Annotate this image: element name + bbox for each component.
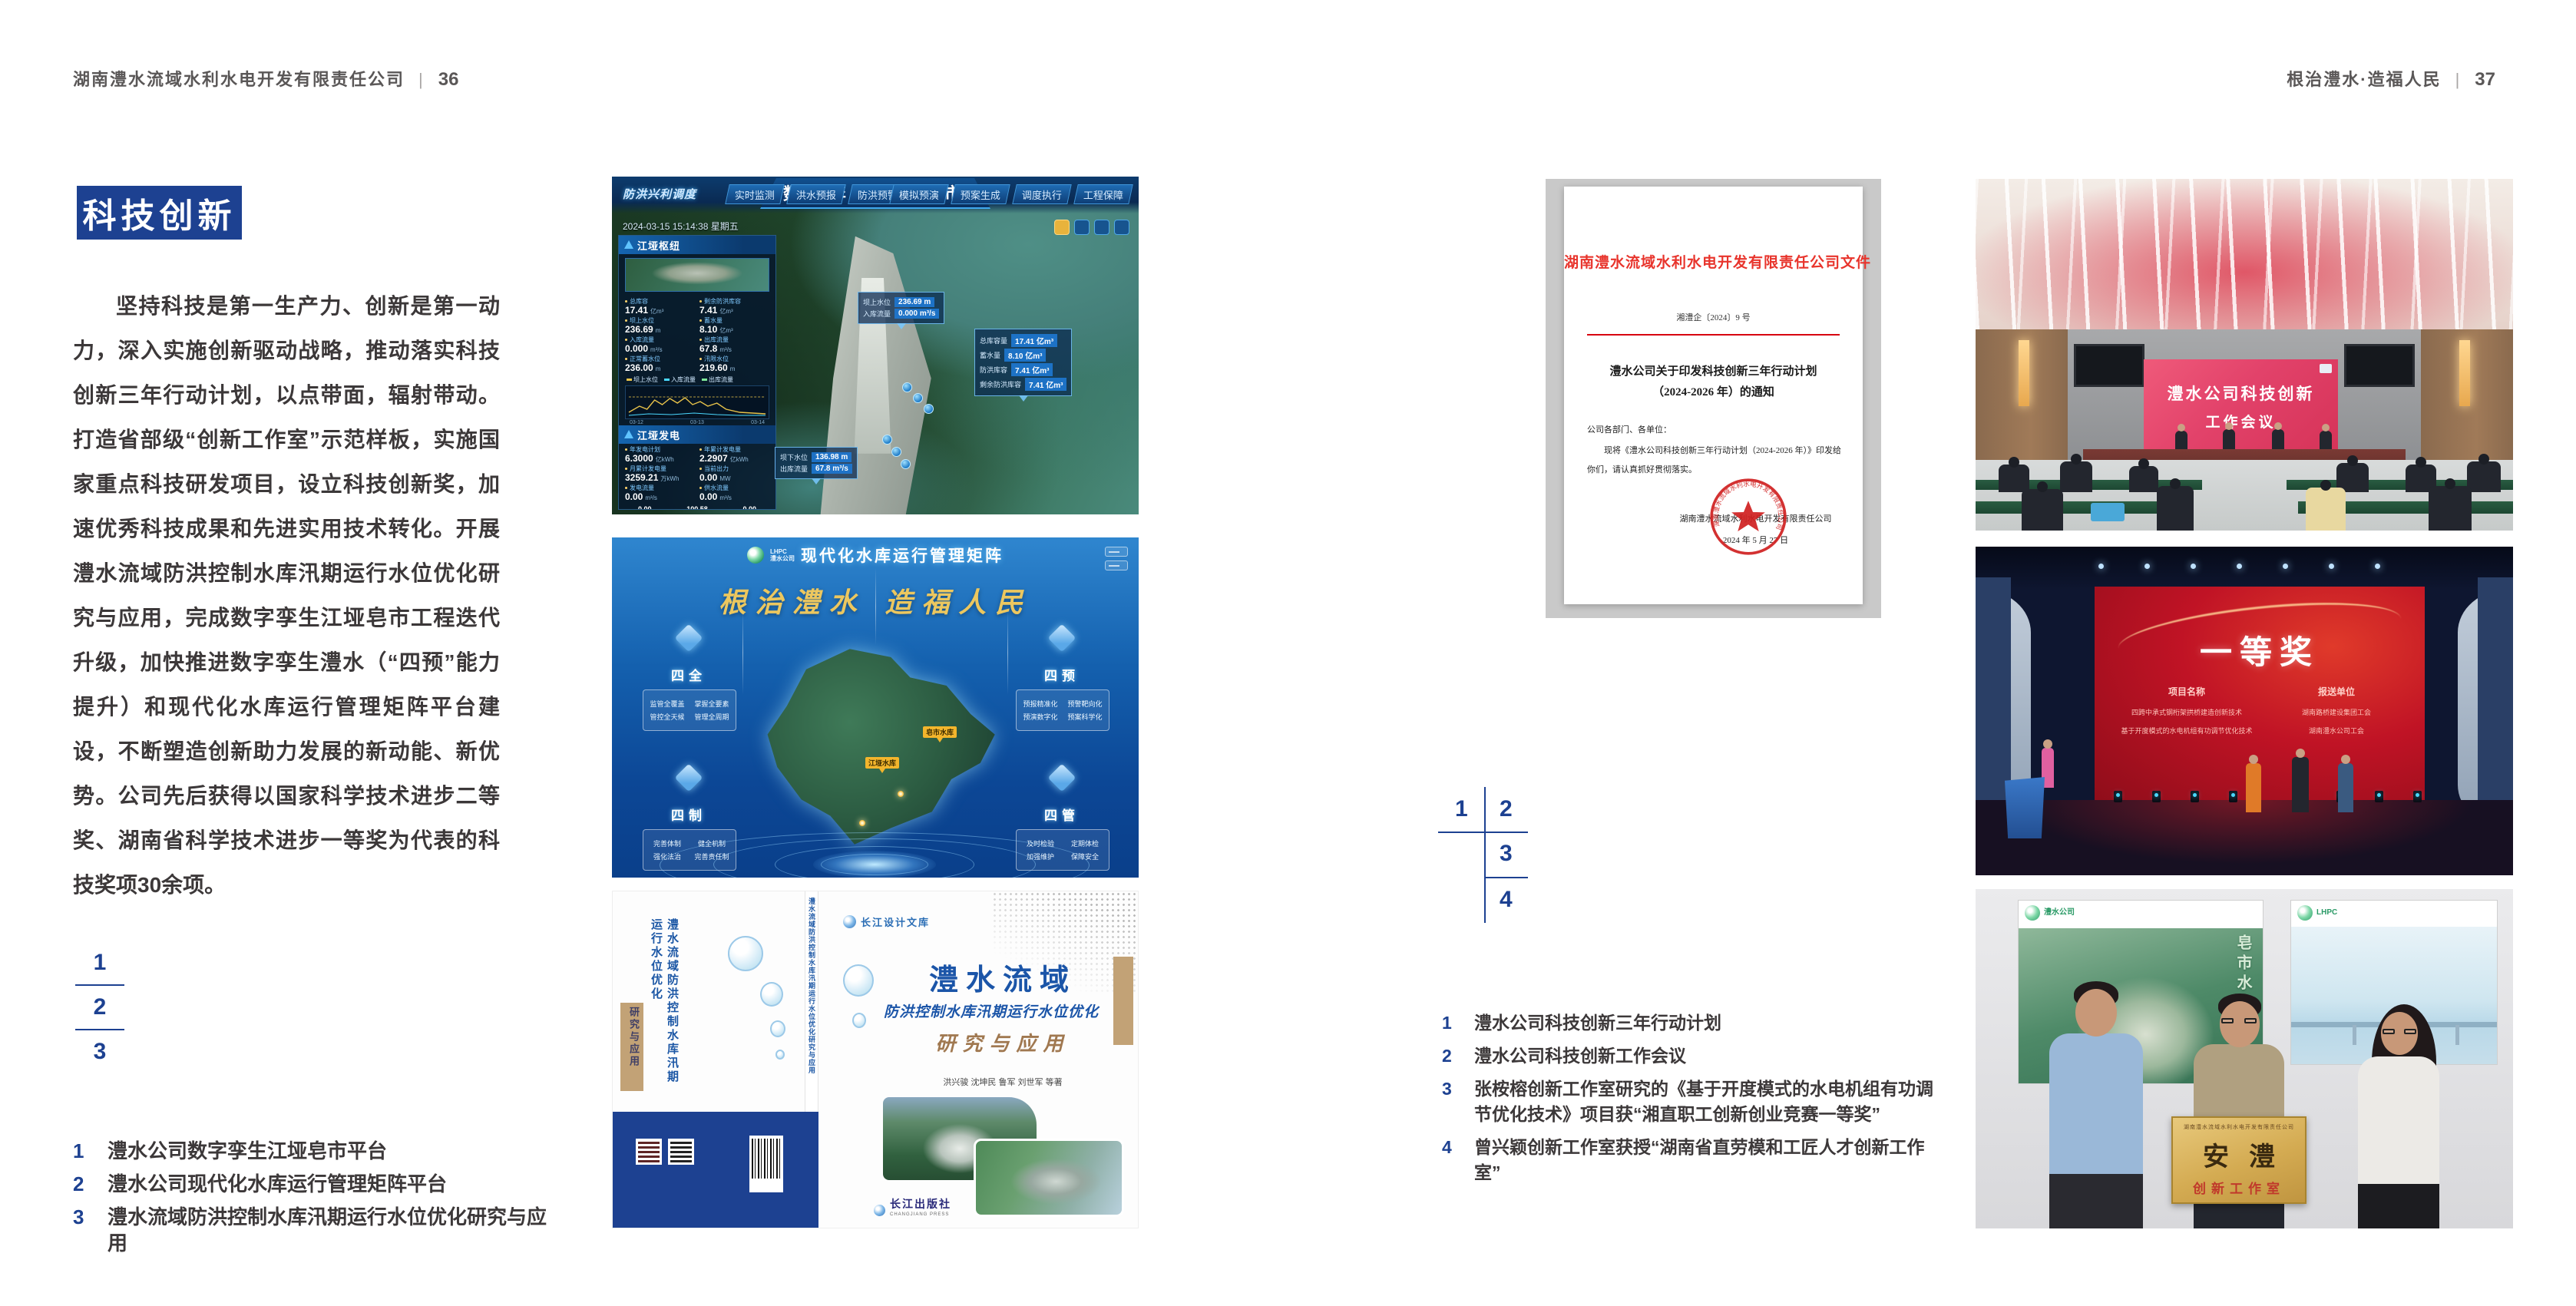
gate-marker-icon [913, 393, 923, 403]
stage-light-icon [2144, 564, 2150, 569]
stage-fixture-icon [2375, 791, 2383, 802]
tag-row: 剩余防洪库容7.41 亿m³ [980, 378, 1066, 391]
lectern [2005, 777, 2045, 838]
caption-row: 2 澧水公司科技创新工作会议 [1442, 1043, 1949, 1069]
figure-matrix-platform: LHPC澧水公司 现代化水库运行管理矩阵 根治澧水 造福人民 皂市水库 江垭水库… [612, 537, 1139, 878]
body-paragraph: 坚持科技是第一生产力、创新是第一动力，深入实施创新驱动战略，推动落实科技创新三年… [73, 284, 500, 908]
company-name: 湖南澧水流域水利水电开发有限责任公司 [73, 70, 405, 89]
bullet-icon [625, 339, 627, 341]
ceiling [1976, 179, 2513, 329]
toolbar-icon [1054, 220, 1070, 235]
dashboard-side-panel: 江垭枢纽 总库容 17.41亿m³ 剩余防洪库容 7.41亿m³ 坝上水位 [618, 235, 776, 510]
brand-slogan: 根治澧水·造福人民 [2287, 70, 2441, 89]
figure-index-number: 1 [75, 941, 124, 984]
qr-code [668, 1139, 694, 1165]
platform-header: LHPC澧水公司 现代化水库运行管理矩阵 [612, 544, 1139, 567]
panel-header: 江垭枢纽 [619, 236, 775, 254]
toolbar-icon [1114, 220, 1129, 235]
power-stats: 年发电计划 6.3000亿kWh 年累计发电量 2.2907亿kWh 月累计发电… [619, 444, 775, 504]
bullet-icon [699, 468, 702, 470]
caption-text: 曾兴颖创新工作室获授“湖南省直劳模和工匠人才创新工作室” [1474, 1135, 1949, 1185]
figure-index-number: 3 [1500, 841, 1513, 867]
official-seal-icon: 湖南澧水流域水利水电开发有限责任公司 [1708, 477, 1788, 557]
stat-cell: 蓄水量 8.10亿m³ [699, 316, 769, 335]
book-authors: 洪兴骏 沈坤民 鲁军 刘世军 等著 [866, 1076, 1139, 1088]
stat-cell: 供水流量 0.00m³/s [699, 484, 769, 502]
stage-fixture-icon [2114, 791, 2122, 802]
legend-swatch [664, 379, 670, 381]
stat-cell: 坝上水位 236.69m [625, 316, 695, 335]
gate-marker-icon [902, 382, 912, 392]
bullet-icon [699, 448, 702, 451]
toolbar-icon [1094, 220, 1109, 235]
stage-floor [1976, 800, 2513, 875]
caption-list-right: 1 澧水公司科技创新三年行动计划 2 澧水公司科技创新工作会议 3 张桉榕创新工… [1442, 1010, 1949, 1193]
wall-tv [2074, 344, 2144, 387]
water-droplet-icon [760, 982, 783, 1007]
panel-header: 江垭发电 [619, 425, 775, 444]
bridge-pier [2455, 1025, 2459, 1045]
stat-cell: 年发电计划 6.3000亿kWh [625, 445, 695, 464]
stage-light-icon [2098, 564, 2104, 569]
module-label: 防洪兴利调度 [623, 186, 696, 202]
matrix-icon [1048, 764, 1076, 792]
document-salutation: 公司各部门、各单位： [1587, 423, 1672, 435]
reservoir-dot-icon [898, 791, 904, 797]
gauge: 0.00 3#机组 [739, 505, 759, 510]
matrix-item: 管控全天候 [650, 712, 684, 722]
audience-person [2060, 461, 2092, 492]
awardee-person [2246, 763, 2261, 812]
map-tag-upstream: 坝上水位236.69 m入库流量0.000 m³/s [858, 292, 944, 324]
toolbar-icon [1074, 220, 1090, 235]
water-droplet-icon [770, 1020, 785, 1037]
meeting-screen: 澧水公司科技创新 工作会议 [2144, 359, 2338, 454]
chart-ticks: 03-1203-1303-14 [619, 420, 775, 425]
stage-fixture-icon [2191, 791, 2199, 802]
header-divider: | [418, 70, 425, 89]
matrix-icon [675, 624, 703, 653]
deco-line [1007, 610, 1008, 695]
caption-text: 澧水公司数字孪生江垭皂市平台 [107, 1138, 387, 1164]
unit-gauges: 0.00 1#机组 100.58 2#机组 0.00 3#机组 [619, 504, 775, 510]
dashboard-toolbar [1054, 220, 1129, 235]
audience-person [2429, 486, 2472, 531]
rostrum-person [2320, 431, 2332, 451]
caption-text: 澧水公司科技创新三年行动计划 [1474, 1010, 1721, 1036]
matrix-group-panel: 预报精准化预警靶向化预演数字化预案科学化 [1016, 689, 1109, 731]
watershed-map [758, 645, 1000, 848]
audience-person [2157, 486, 2194, 531]
dam-thumbnail [625, 258, 769, 292]
caption-list-left: 1 澧水公司数字孪生江垭皂市平台 2 澧水公司现代化水库运行管理矩阵平台 3 澧… [73, 1138, 564, 1263]
stage-light-icon [2375, 564, 2380, 569]
figure-index-number: 4 [1500, 887, 1513, 913]
window-control-icon [1105, 547, 1128, 557]
dashboard-tab: 调度执行 [1012, 184, 1072, 204]
figure-index-number: 2 [75, 986, 124, 1029]
caption-number: 1 [1442, 1010, 1474, 1036]
matrix-group-name: 四管 [1016, 805, 1108, 824]
caption-text: 澧水公司科技创新工作会议 [1474, 1043, 1686, 1069]
red-rule [1587, 334, 1840, 336]
lhpc-logo-icon [747, 547, 764, 564]
stat-cell: 出库流量 67.8m³/s [699, 336, 769, 354]
gate-marker-icon [901, 459, 911, 469]
figure-book-cover: 澧水流域防洪控制水库汛期运行水位优化 研究与应用 澧水流域防洪控制水库汛期运行水… [612, 891, 1139, 1228]
stat-cell: 入库流量 0.000m³/s [625, 336, 695, 354]
stat-cell: 汛限水位 219.60m [699, 355, 769, 373]
back-cover-title: 澧水流域防洪控制水库汛期运行水位优化 [648, 918, 680, 1095]
stage-fixture-icon [2229, 791, 2237, 802]
section-title: 科技创新 [77, 186, 242, 240]
stat-cell: 总库容 17.41亿m³ [625, 297, 695, 316]
legend-swatch [702, 379, 707, 381]
figure-index-number: 2 [1500, 796, 1513, 822]
barcode [749, 1136, 783, 1192]
matrix-item: 预演数字化 [1023, 712, 1057, 722]
document-red-header: 湖南澧水流域水利水电开发有限责任公司文件 [1564, 251, 1863, 272]
presenter-person [2292, 757, 2309, 812]
tag-row: 坝上水位236.69 m [863, 297, 939, 307]
matrix-group-panel: 监管全覆盖掌握全要素管控全天候管理全周期 [643, 689, 736, 731]
wall-tv [2344, 344, 2415, 387]
photo-innovation-studio-group: 澧水公司 皂市水库 LHPC [1976, 889, 2513, 1228]
page-number-right: 37 [2475, 69, 2495, 90]
figure-index-left: 1 2 3 [75, 941, 124, 1073]
bridge-pier [2353, 1025, 2356, 1045]
brochure-spread: 湖南澧水流域水利水电开发有限责任公司|36 根治澧水·造福人民|37 科技创新 … [0, 0, 2576, 1306]
matrix-item: 预报精准化 [1023, 699, 1057, 709]
dashboard-datetime: 2024-03-15 15:14:38 星期五 [623, 220, 739, 233]
reservoir-dot-icon [859, 820, 865, 826]
stat-cell: 正常蓄水位 236.00m [625, 355, 695, 373]
award-column-header: 报送单位 [2260, 685, 2413, 698]
legend-swatch [627, 379, 632, 381]
bullet-icon [625, 487, 627, 489]
stat-cell: 当前出力 0.00MW [699, 465, 769, 483]
reservoir-marker: 皂市水库 [923, 726, 957, 738]
rostrum-person [2175, 431, 2187, 451]
reservoir-marker: 江垭水库 [865, 757, 899, 769]
tag-row: 防洪库容7.41 亿m³ [980, 363, 1066, 376]
tag-row: 出库流量67.8 m³/s [780, 464, 852, 474]
index-divider [1438, 832, 1528, 833]
back-cover-blue-band [613, 1112, 818, 1228]
wall-lamp [2459, 340, 2470, 406]
plaque-subtitle: 创新工作室 [2173, 1178, 2305, 1197]
matrix-icon [675, 764, 703, 792]
stage-light-icon [2191, 564, 2196, 569]
caption-number: 2 [1442, 1043, 1474, 1069]
glasses-icon [2244, 1018, 2257, 1023]
book-spine: 澧水流域防洪控制水库汛期运行水位优化研究与应用 [805, 891, 818, 1112]
lhpc-logo-icon [2025, 905, 2040, 921]
audience-person [2467, 461, 2501, 492]
bullet-icon [699, 300, 702, 303]
tag-row: 坝下水位136.98 m [780, 452, 852, 462]
wall-lamp [2019, 340, 2029, 406]
bullet-icon [699, 358, 702, 360]
figure-digital-twin-platform: 数字孪生江垭皂市 防洪兴利调度 实时监测洪水预报防洪预警 模拟预演预案生成调度执… [612, 177, 1139, 514]
bullet-icon [699, 339, 702, 341]
matrix-group-name: 四预 [1016, 665, 1108, 684]
figure-index-number: 3 [75, 1030, 124, 1073]
sail-icon [624, 240, 633, 249]
chart-legend: 坝上水位 入库流量 出库流量 [619, 375, 775, 385]
matrix-item: 定期体检 [1071, 838, 1099, 848]
hub-stats: 总库容 17.41亿m³ 剩余防洪库容 7.41亿m³ 坝上水位 236.69m [619, 296, 775, 375]
matrix-item: 完善体制 [653, 838, 681, 848]
awardee-person [2338, 763, 2353, 812]
bullet-icon [699, 319, 702, 322]
bullet-icon [625, 319, 627, 322]
matrix-item: 监管全覆盖 [650, 699, 684, 709]
spine-title: 澧水流域防洪控制水库汛期运行水位优化研究与应用 [807, 898, 817, 1105]
sail-icon [624, 430, 633, 438]
publisher-block: 长江出版社CHANGJIANG PRESS [874, 1200, 997, 1220]
caption-number: 2 [73, 1171, 107, 1197]
award-project: 四跨中承式钢桁架拱桥建造创新技术 [2110, 703, 2264, 722]
stat-cell: 剩余防洪库容 7.41亿m³ [699, 297, 769, 316]
caption-row: 3 张桉榕创新工作室研究的《基于开度模式的水电机组有功调节优化技术》项目获“湘直… [1442, 1076, 1949, 1127]
caption-row: 1 澧水公司数字孪生江垭皂市平台 [73, 1138, 564, 1164]
map-tag-capacity: 总库容量17.41 亿m³蓄水量8.10 亿m³防洪库容7.41 亿m³剩余防洪… [974, 329, 1072, 396]
glasses-icon [2404, 1029, 2416, 1034]
index-divider [1484, 787, 1486, 923]
screen-logo-icon [2320, 364, 2332, 373]
award-title: 一等奖 [2095, 627, 2425, 673]
figure-index-number: 1 [1455, 796, 1468, 822]
dashboard-tab: 预案生成 [951, 184, 1010, 204]
matrix-item: 管理全周期 [694, 712, 729, 722]
back-cover-subtitle: 研究与应用 [627, 1007, 641, 1091]
caption-number: 1 [73, 1138, 107, 1164]
stat-cell: 年累计发电量 2.2907亿kWh [699, 445, 769, 464]
award-project: 基于开度模式的水电机组有功调节优化技术 [2110, 722, 2264, 740]
plaque-header: 湖南澧水流域水利水电开发有限责任公司 [2173, 1123, 2305, 1131]
bullet-icon [625, 468, 627, 470]
matrix-group-name: 四全 [643, 665, 735, 684]
stat-cell: 月累计发电量 3259.21万kWh [625, 465, 695, 483]
document-title: 澧水公司关于印发科技创新三年行动计划（2024-2026 年）的通知 [1564, 362, 1863, 403]
caption-text: 澧水公司现代化水库运行管理矩阵平台 [107, 1171, 447, 1197]
gauge: 0.00 1#机组 [635, 505, 655, 510]
stage-light-icon [2283, 564, 2288, 569]
water-droplet-icon [775, 1050, 785, 1060]
photo-innovation-meeting: 澧水公司科技创新 工作会议 [1976, 179, 2513, 531]
stage-light-icon [2329, 564, 2334, 569]
dashboard-tabs-right: 模拟预演预案生成调度执行工程保障 [891, 184, 1131, 204]
page-number-left: 36 [438, 69, 459, 90]
caption-row: 3 澧水流域防洪控制水库汛期运行水位优化研究与应用 [73, 1204, 564, 1256]
caption-number: 3 [1442, 1076, 1474, 1127]
gate-marker-icon [882, 435, 892, 445]
figure-index-right: 1 2 3 4 [1438, 787, 1607, 927]
rigging [1976, 547, 2513, 590]
caption-number: 4 [1442, 1135, 1474, 1185]
header-divider: | [2455, 70, 2462, 89]
series-logo: 长江设计文库 [843, 914, 930, 929]
document-number: 湘澧企〔2024〕9 号 [1564, 311, 1863, 323]
index-divider [1484, 877, 1528, 878]
plaque-title: 安澧 [2173, 1136, 2305, 1173]
gate-marker-icon [891, 447, 901, 457]
stat-cell: 发电流量 0.00m³/s [625, 484, 695, 502]
publisher-logo-icon [874, 1205, 885, 1216]
running-head-left: 湖南澧水流域水利水电开发有限责任公司|36 [73, 66, 458, 91]
caption-row: 2 澧水公司现代化水库运行管理矩阵平台 [73, 1171, 564, 1197]
innovation-studio-plaque: 湖南澧水流域水利水电开发有限责任公司 安澧 创新工作室 [2171, 1116, 2306, 1204]
platform-title: 现代化水库运行管理矩阵 [801, 544, 1004, 567]
glasses-icon [2221, 1018, 2234, 1023]
qr-code [636, 1139, 662, 1165]
book-subtitle: 防洪控制水库汛期运行水位优化 [843, 1000, 1139, 1021]
tag-row: 总库容量17.41 亿m³ [980, 334, 1066, 347]
stage-fixture-icon [2152, 791, 2161, 802]
stage-fixture-icon [2413, 791, 2422, 802]
changjiang-design-logo-icon [843, 915, 856, 928]
award-unit: 湖南澧水公司工会 [2260, 722, 2413, 740]
bullet-icon [699, 487, 702, 489]
document-body: 现将《澧水公司科技创新三年行动计划（2024-2026 年）》印发给你们，请认真… [1587, 441, 1841, 480]
award-column-header: 项目名称 [2110, 685, 2264, 698]
book-title-tail: 研究与应用 [866, 1028, 1139, 1056]
audience-person [2022, 489, 2063, 531]
caption-text: 张桉榕创新工作室研究的《基于开度模式的水电机组有功调节优化技术》项目获“湘直职工… [1474, 1076, 1949, 1127]
figure-official-document: 湖南澧水流域水利水电开发有限责任公司文件 湘澧企〔2024〕9 号 澧水公司关于… [1546, 179, 1881, 618]
book-title: 澧水流域 [866, 956, 1139, 998]
matrix-item: 掌握全要素 [694, 699, 729, 709]
window-control-icon [1105, 560, 1128, 570]
dashboard-tab: 工程保障 [1073, 184, 1133, 204]
audience-person [2306, 488, 2346, 531]
matrix-icon [1048, 624, 1076, 653]
tag-row: 蓄水量8.10 亿m³ [980, 349, 1066, 362]
award-unit: 湖南路桥建设集团工会 [2260, 703, 2413, 722]
bullet-icon [625, 448, 627, 451]
award-project-list: 四跨中承式钢桁架拱桥建造创新技术基于开度模式的水电机组有功调节优化技术 [2110, 703, 2264, 740]
dashboard-tab: 模拟预演 [889, 184, 949, 204]
lhpc-logo-icon [2297, 905, 2313, 921]
gate-marker-icon [924, 404, 934, 414]
rostrum-person [2223, 429, 2235, 449]
tag-row: 入库流量0.000 m³/s [863, 309, 939, 319]
dashboard-tabs-left: 实时监测洪水预报防洪预警 [727, 184, 905, 204]
matrix-group-name: 四制 [643, 805, 735, 824]
glasses-icon [2383, 1029, 2395, 1034]
award-unit-list: 湖南路桥建设集团工会湖南澧水公司工会 [2260, 703, 2413, 740]
caption-row: 1 澧水公司科技创新三年行动计划 [1442, 1010, 1949, 1036]
stage-light-icon [2237, 564, 2242, 569]
running-head-right: 根治澧水·造福人民|37 [2287, 66, 2495, 91]
tissue-box [2091, 503, 2125, 521]
bullet-icon [625, 358, 627, 360]
matrix-item: 预案科学化 [1067, 712, 1102, 722]
gauge: 100.58 2#机组 [686, 505, 708, 510]
water-droplet-icon [728, 936, 763, 971]
dashboard-tab: 实时监测 [725, 184, 785, 204]
deco-line [742, 610, 743, 695]
photo-award-ceremony: 一等奖 项目名称 报送单位 四跨中承式钢桁架拱桥建造创新技术基于开度模式的水电机… [1976, 547, 2513, 875]
map-tag-downstream: 坝下水位136.98 m出库流量67.8 m³/s [775, 447, 858, 479]
rostrum-person [2272, 429, 2284, 449]
caption-text: 澧水流域防洪控制水库汛期运行水位优化研究与应用 [107, 1204, 564, 1256]
document-page: 湖南澧水流域水利水电开发有限责任公司文件 湘澧企〔2024〕9 号 澧水公司关于… [1564, 187, 1863, 604]
bullet-icon [625, 300, 627, 303]
deco-line [875, 568, 876, 645]
dashboard-tab: 洪水预报 [786, 184, 846, 204]
water-level-chart [625, 385, 769, 419]
audience-person [2129, 466, 2158, 492]
matrix-item: 预警靶向化 [1067, 699, 1102, 709]
audience-person [1999, 465, 2029, 492]
caption-row: 4 曾兴颖创新工作室获授“湖南省直劳模和工匠人才创新工作室” [1442, 1135, 1949, 1185]
caption-number: 3 [73, 1204, 107, 1256]
